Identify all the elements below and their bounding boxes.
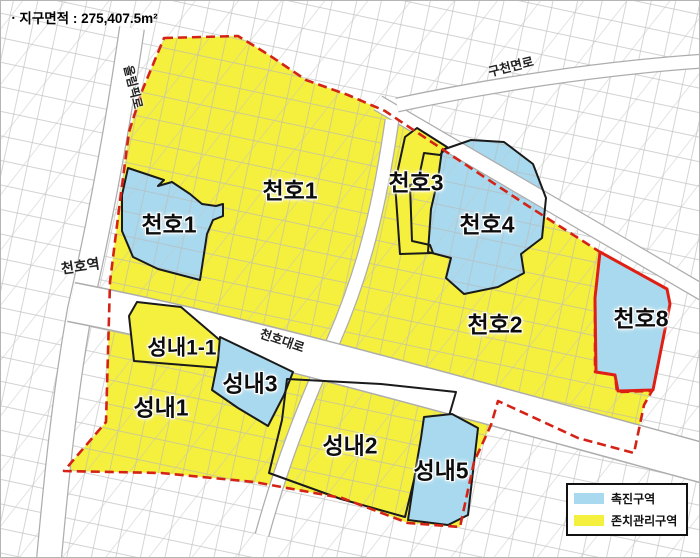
label-seongnae1-1: 성내1-1: [148, 338, 217, 359]
label-cheonho4: 천호4: [459, 214, 514, 237]
legend-label-maintenance: 존치관리구역: [611, 512, 677, 529]
label-cheonho8: 천호8: [613, 308, 668, 331]
map-canvas: [1, 1, 700, 558]
label-cheonho1-promotion: 천호1: [141, 214, 196, 237]
label-cheonho2: 천호2: [467, 314, 522, 337]
label-cheonho1: 천호1: [262, 180, 317, 203]
district-area-title: ㆍ지구면적 : 275,407.5m²: [7, 7, 158, 27]
legend-swatch-maintenance: [574, 515, 604, 526]
label-seongnae3: 성내3: [222, 373, 277, 396]
legend-row-maintenance: 존치관리구역: [574, 512, 680, 529]
label-seongnae1: 성내1: [133, 397, 188, 420]
legend: 촉진구역 존치관리구역: [566, 483, 688, 536]
district-map: ㆍ지구면적 : 275,407.5m² 천호1 천호1 천호3 천호4 천호2 …: [0, 0, 700, 558]
legend-swatch-promotion: [574, 493, 604, 504]
legend-label-promotion: 촉진구역: [611, 490, 655, 507]
label-cheonho3: 천호3: [388, 172, 443, 195]
label-seongnae5: 성내5: [413, 460, 468, 483]
legend-row-promotion: 촉진구역: [574, 490, 680, 507]
label-seongnae2: 성내2: [322, 435, 377, 458]
